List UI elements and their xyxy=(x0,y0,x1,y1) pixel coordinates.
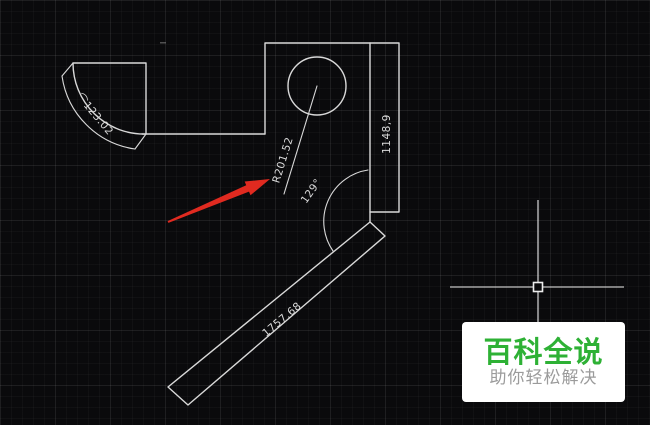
watermark-card: 百科全说 助你轻松解决 xyxy=(462,322,625,402)
arc-dim-extension-top xyxy=(62,63,73,76)
arc-dim-extension-bottom xyxy=(135,134,146,149)
diagonal-bar xyxy=(168,222,385,405)
pickbox xyxy=(534,283,543,292)
arc-length-dim-label: ⌒123.02 xyxy=(74,91,116,138)
watermark-title: 百科全说 xyxy=(483,338,603,367)
radius-dim-label: R201.52 xyxy=(270,136,295,185)
drawing-lines xyxy=(62,43,399,405)
red-annotation-arrow xyxy=(168,179,270,223)
angle-dim-label: 129° xyxy=(299,177,324,206)
height-dim-label: 1148,9 xyxy=(381,114,393,154)
flag-outline xyxy=(265,43,399,212)
stray-mark xyxy=(160,42,166,44)
watermark-subtitle: 助你轻松解决 xyxy=(490,370,598,387)
cad-canvas[interactable]: ⌒123.02 R201.52 129° 1148,9 1757.68 百科全说… xyxy=(0,0,650,425)
dim-labels: ⌒123.02 R201.52 129° 1148,9 1757.68 xyxy=(74,91,393,339)
angle-dim-arc xyxy=(324,170,368,251)
